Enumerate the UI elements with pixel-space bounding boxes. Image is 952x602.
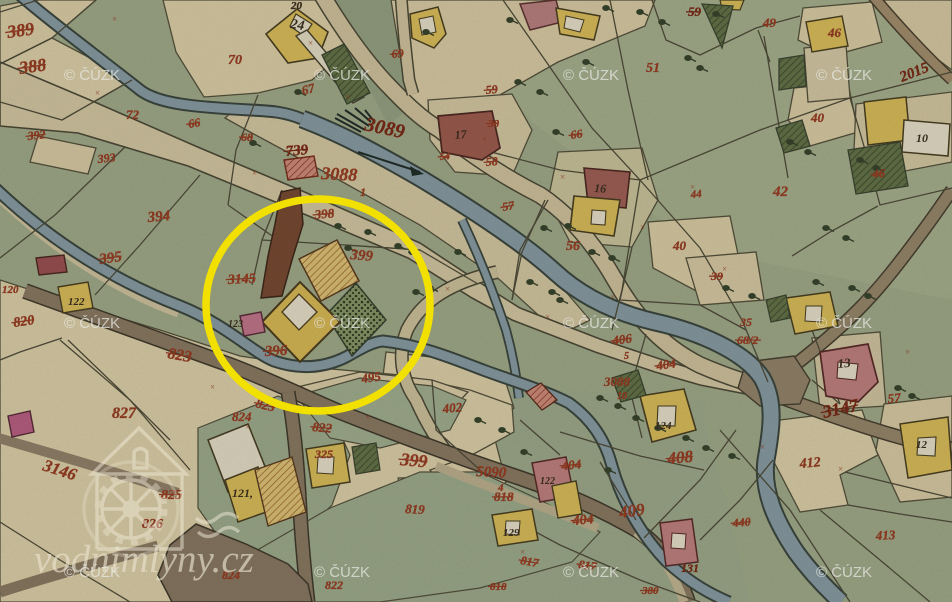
svg-text:© ČÚZK: © ČÚZK xyxy=(64,564,120,581)
svg-text:© ČÚZK: © ČÚZK xyxy=(64,67,120,84)
svg-text:© ČÚZK: © ČÚZK xyxy=(563,564,619,581)
svg-text:© ČÚZK: © ČÚZK xyxy=(816,564,872,581)
svg-text:© ČÚZK: © ČÚZK xyxy=(563,67,619,84)
svg-text:© ČÚZK: © ČÚZK xyxy=(314,564,370,581)
svg-text:© ČÚZK: © ČÚZK xyxy=(563,315,619,332)
svg-text:© ČÚZK: © ČÚZK xyxy=(64,315,120,332)
svg-text:© ČÚZK: © ČÚZK xyxy=(314,67,370,84)
svg-text:© ČÚZK: © ČÚZK xyxy=(314,315,370,332)
svg-text:© ČÚZK: © ČÚZK xyxy=(816,67,872,84)
svg-text:© ČÚZK: © ČÚZK xyxy=(816,315,872,332)
